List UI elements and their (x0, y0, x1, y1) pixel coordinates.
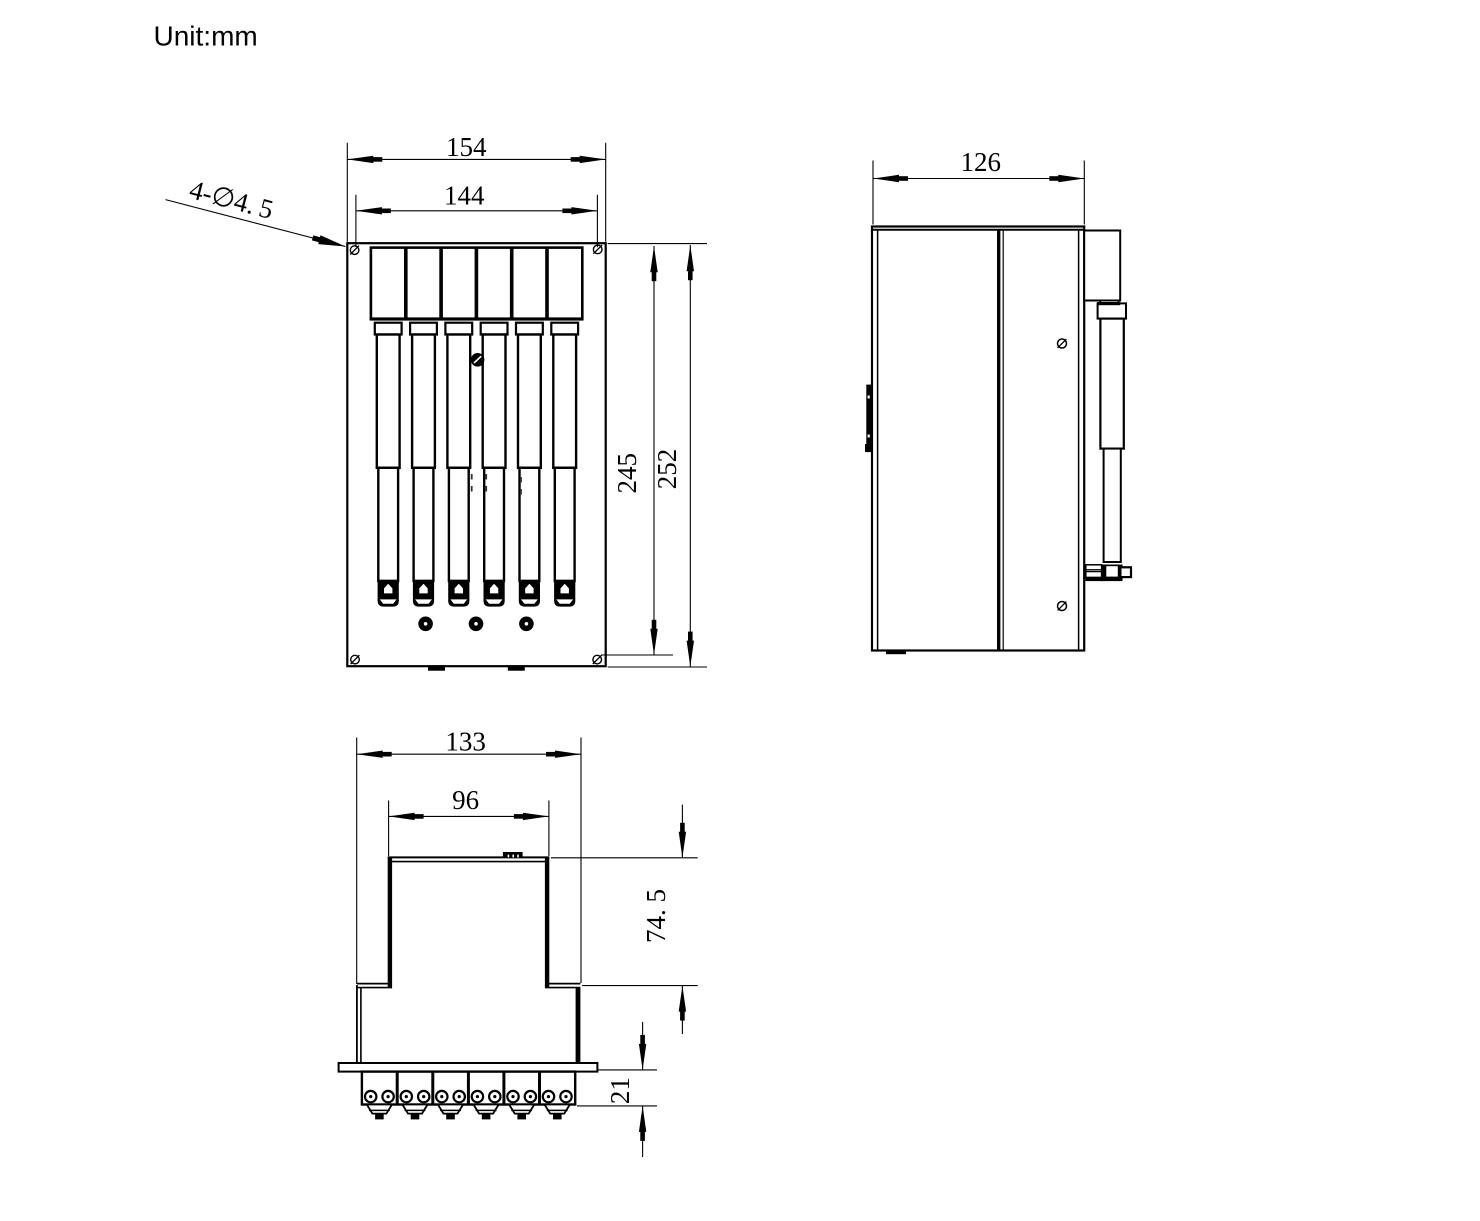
svg-text:74. 5: 74. 5 (641, 889, 671, 943)
svg-text:154: 154 (446, 132, 487, 162)
svg-text:144: 144 (444, 180, 485, 210)
svg-text:245: 245 (612, 453, 642, 494)
svg-text:126: 126 (961, 147, 1002, 177)
svg-text:Unit:mm: Unit:mm (154, 21, 258, 52)
svg-text:133: 133 (445, 727, 486, 757)
svg-text:252: 252 (652, 449, 682, 490)
svg-text:96: 96 (452, 785, 479, 815)
svg-text:21: 21 (605, 1077, 635, 1104)
